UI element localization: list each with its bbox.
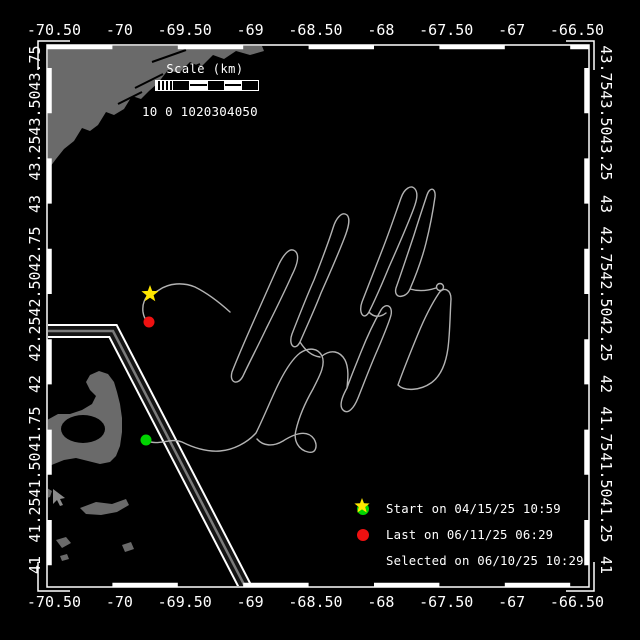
- scale-segment: [224, 81, 241, 90]
- island: [56, 537, 71, 548]
- scale-segment: [241, 81, 258, 90]
- lat-label-left: 41: [27, 523, 43, 607]
- track-legend: Start on 04/15/25 10:59Last on 06/11/25 …: [352, 496, 584, 574]
- lat-label-right: 41: [598, 523, 614, 607]
- island: [122, 542, 134, 552]
- start-marker[interactable]: [141, 435, 152, 446]
- cursor-arrow-icon: [53, 489, 65, 506]
- island: [60, 554, 69, 561]
- scale-bar-ticks: 10 0 1020304050: [142, 104, 282, 119]
- legend-row: Last on 06/11/25 06:29: [352, 522, 584, 548]
- selected-marker-star[interactable]: [141, 285, 158, 301]
- legend-label: Selected on 06/10/25 10:29: [386, 554, 584, 568]
- last-dot-icon: [352, 529, 374, 541]
- scale-segment-hatched: [156, 81, 172, 90]
- scale-segment: [172, 81, 189, 90]
- glider-track-map-screen: -70.50-70.50-70-70-69.50-69.50-69-69-68.…: [0, 0, 640, 640]
- scale-segment: [189, 81, 206, 90]
- legend-row: Selected on 06/10/25 10:29: [352, 548, 584, 574]
- land-layer: [47, 46, 264, 561]
- cape-cod-bay: [61, 415, 105, 443]
- scale-bar: [155, 80, 259, 91]
- legend-label: Start on 04/15/25 10:59: [386, 502, 561, 516]
- track-knot: [437, 284, 444, 291]
- scale-bar-title: Scale (km): [153, 62, 257, 76]
- scale-segment: [207, 81, 224, 90]
- glider-track-path[interactable]: [143, 187, 451, 452]
- last-position-marker[interactable]: [144, 317, 155, 328]
- legend-label: Last on 06/11/25 06:29: [386, 528, 553, 542]
- island: [80, 499, 129, 515]
- legend-row: Start on 04/15/25 10:59: [352, 496, 584, 522]
- shipping-lane: [44, 331, 252, 600]
